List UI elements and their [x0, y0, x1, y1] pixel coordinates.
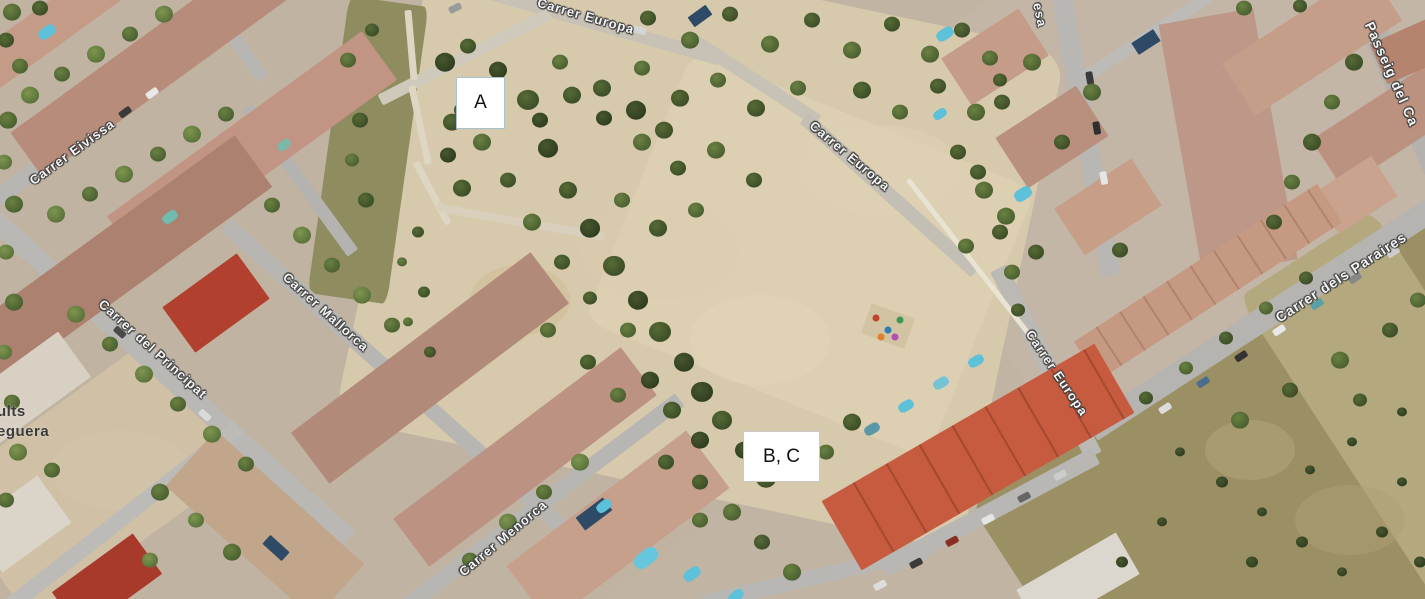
- tree: [1282, 383, 1298, 398]
- tree: [499, 514, 517, 531]
- tree: [183, 126, 201, 143]
- tree: [884, 17, 900, 32]
- tree: [563, 87, 581, 104]
- tree: [975, 182, 993, 199]
- tree: [783, 564, 801, 581]
- terrain-patch: [580, 200, 740, 300]
- tree: [997, 208, 1015, 225]
- tree: [790, 81, 806, 96]
- pool: [682, 564, 703, 584]
- tree: [489, 62, 507, 79]
- tree: [142, 553, 158, 568]
- tree: [358, 193, 374, 208]
- tree: [9, 444, 27, 461]
- tree: [712, 411, 732, 430]
- tree: [634, 61, 650, 76]
- tree: [671, 90, 689, 107]
- tree: [640, 11, 656, 26]
- tree: [554, 255, 570, 270]
- tree: [4, 395, 20, 410]
- tree: [1259, 302, 1273, 315]
- tree: [412, 226, 424, 237]
- tree: [1116, 556, 1128, 567]
- tree: [353, 287, 371, 304]
- tree: [188, 513, 204, 528]
- tree: [571, 454, 589, 471]
- tree: [1414, 556, 1425, 567]
- tree: [523, 214, 541, 231]
- tree: [462, 553, 478, 568]
- tree: [649, 220, 667, 237]
- tree: [324, 258, 340, 273]
- terrain-patch: [1205, 420, 1295, 480]
- tree: [135, 366, 153, 383]
- tree: [82, 187, 98, 202]
- tree: [691, 432, 709, 449]
- tree: [614, 193, 630, 208]
- tree: [340, 53, 356, 68]
- tree: [1004, 265, 1020, 280]
- marker-a: A: [456, 77, 505, 129]
- tree: [982, 51, 998, 66]
- tree: [3, 4, 21, 21]
- playground-equipment: [892, 334, 899, 341]
- tree: [223, 544, 241, 561]
- tree: [1382, 323, 1398, 338]
- tree: [264, 198, 280, 213]
- tree: [681, 32, 699, 49]
- tree: [1216, 476, 1228, 487]
- tree: [1083, 84, 1101, 101]
- tree: [0, 112, 17, 129]
- tree: [761, 36, 779, 53]
- playground-equipment: [878, 334, 885, 341]
- tree: [151, 484, 169, 501]
- tree: [473, 134, 491, 151]
- tree: [747, 100, 765, 117]
- tree: [1246, 556, 1258, 567]
- tree: [992, 225, 1008, 240]
- playground-equipment: [873, 315, 880, 322]
- tree: [1299, 272, 1313, 285]
- tree: [536, 485, 552, 500]
- tree: [610, 388, 626, 403]
- tree: [122, 27, 138, 42]
- tree: [552, 55, 568, 70]
- tree: [5, 294, 23, 311]
- tree: [1112, 243, 1128, 258]
- tree: [238, 457, 254, 472]
- tree: [559, 182, 577, 199]
- tree: [670, 161, 686, 176]
- tree: [754, 535, 770, 550]
- tree: [692, 513, 708, 528]
- tree: [1236, 1, 1252, 16]
- tree: [453, 180, 471, 197]
- tree: [993, 74, 1007, 87]
- tree: [1345, 54, 1363, 71]
- tree: [0, 33, 14, 48]
- tree: [655, 122, 673, 139]
- tree: [87, 46, 105, 63]
- tree: [843, 42, 861, 59]
- tree: [583, 292, 597, 305]
- tree: [722, 7, 738, 22]
- tree: [1028, 245, 1044, 260]
- tree: [692, 475, 708, 490]
- tree: [0, 493, 14, 508]
- tree: [47, 206, 65, 223]
- tree: [970, 165, 986, 180]
- tree: [958, 239, 974, 254]
- tree: [707, 142, 725, 159]
- tree: [532, 113, 548, 128]
- tree: [921, 46, 939, 63]
- tree: [21, 87, 39, 104]
- tree: [54, 67, 70, 82]
- tree: [688, 203, 704, 218]
- tree: [628, 291, 648, 310]
- tree: [658, 455, 674, 470]
- tree: [580, 219, 600, 238]
- tree: [593, 80, 611, 97]
- tree: [12, 59, 28, 74]
- tree: [0, 245, 14, 260]
- tree: [1410, 293, 1425, 308]
- tree: [67, 306, 85, 323]
- tree: [155, 6, 173, 23]
- tree: [620, 323, 636, 338]
- tree: [345, 154, 359, 167]
- tree: [853, 82, 871, 99]
- tree: [1231, 412, 1249, 429]
- tree: [723, 504, 741, 521]
- tree: [1331, 352, 1349, 369]
- tree: [365, 24, 379, 37]
- tree: [596, 111, 612, 126]
- tree: [384, 318, 400, 333]
- tree: [930, 79, 946, 94]
- tree: [538, 139, 558, 158]
- tree: [1023, 54, 1041, 71]
- tree: [746, 173, 762, 188]
- tree: [1296, 536, 1308, 547]
- terrain-patch: [690, 295, 830, 385]
- tree: [424, 346, 436, 357]
- tree: [674, 353, 694, 372]
- tree: [440, 148, 456, 163]
- playground-equipment: [897, 317, 904, 324]
- tree: [1324, 95, 1340, 110]
- tree: [804, 13, 820, 28]
- tree: [818, 445, 834, 460]
- tree: [710, 73, 726, 88]
- tree: [1179, 362, 1193, 375]
- tree: [1139, 392, 1153, 405]
- tree: [892, 105, 908, 120]
- tree: [418, 286, 430, 297]
- tree: [1376, 526, 1388, 537]
- tree: [626, 101, 646, 120]
- tree: [1266, 215, 1282, 230]
- tree: [293, 227, 311, 244]
- tree: [1054, 135, 1070, 150]
- tree: [203, 426, 221, 443]
- playground-equipment: [885, 327, 892, 334]
- tree: [950, 145, 966, 160]
- tree: [633, 134, 651, 151]
- terrain-patch: [1295, 485, 1405, 555]
- tree: [994, 95, 1010, 110]
- tree: [641, 372, 659, 389]
- tree: [115, 166, 133, 183]
- tree: [5, 196, 23, 213]
- tree: [1284, 175, 1300, 190]
- tree: [843, 414, 861, 431]
- tree: [150, 147, 166, 162]
- tree: [1293, 0, 1307, 12]
- car: [873, 579, 888, 591]
- tree: [102, 337, 118, 352]
- tree: [170, 397, 186, 412]
- tree: [1219, 332, 1233, 345]
- tree: [1303, 134, 1321, 151]
- tree: [44, 463, 60, 478]
- tree: [580, 355, 596, 370]
- tree: [967, 104, 985, 121]
- tree: [1011, 304, 1025, 317]
- tree: [1353, 394, 1367, 407]
- map-viewport[interactable]: Carrer Eivissa Carrer del Principat Carr…: [0, 0, 1425, 599]
- marker-bc: B, C: [743, 431, 820, 482]
- tree: [954, 23, 970, 38]
- tree: [435, 53, 455, 72]
- tree: [218, 107, 234, 122]
- tree: [460, 39, 476, 54]
- tree: [352, 113, 368, 128]
- tree: [663, 402, 681, 419]
- tree: [32, 1, 48, 16]
- tree: [500, 173, 516, 188]
- tree: [540, 323, 556, 338]
